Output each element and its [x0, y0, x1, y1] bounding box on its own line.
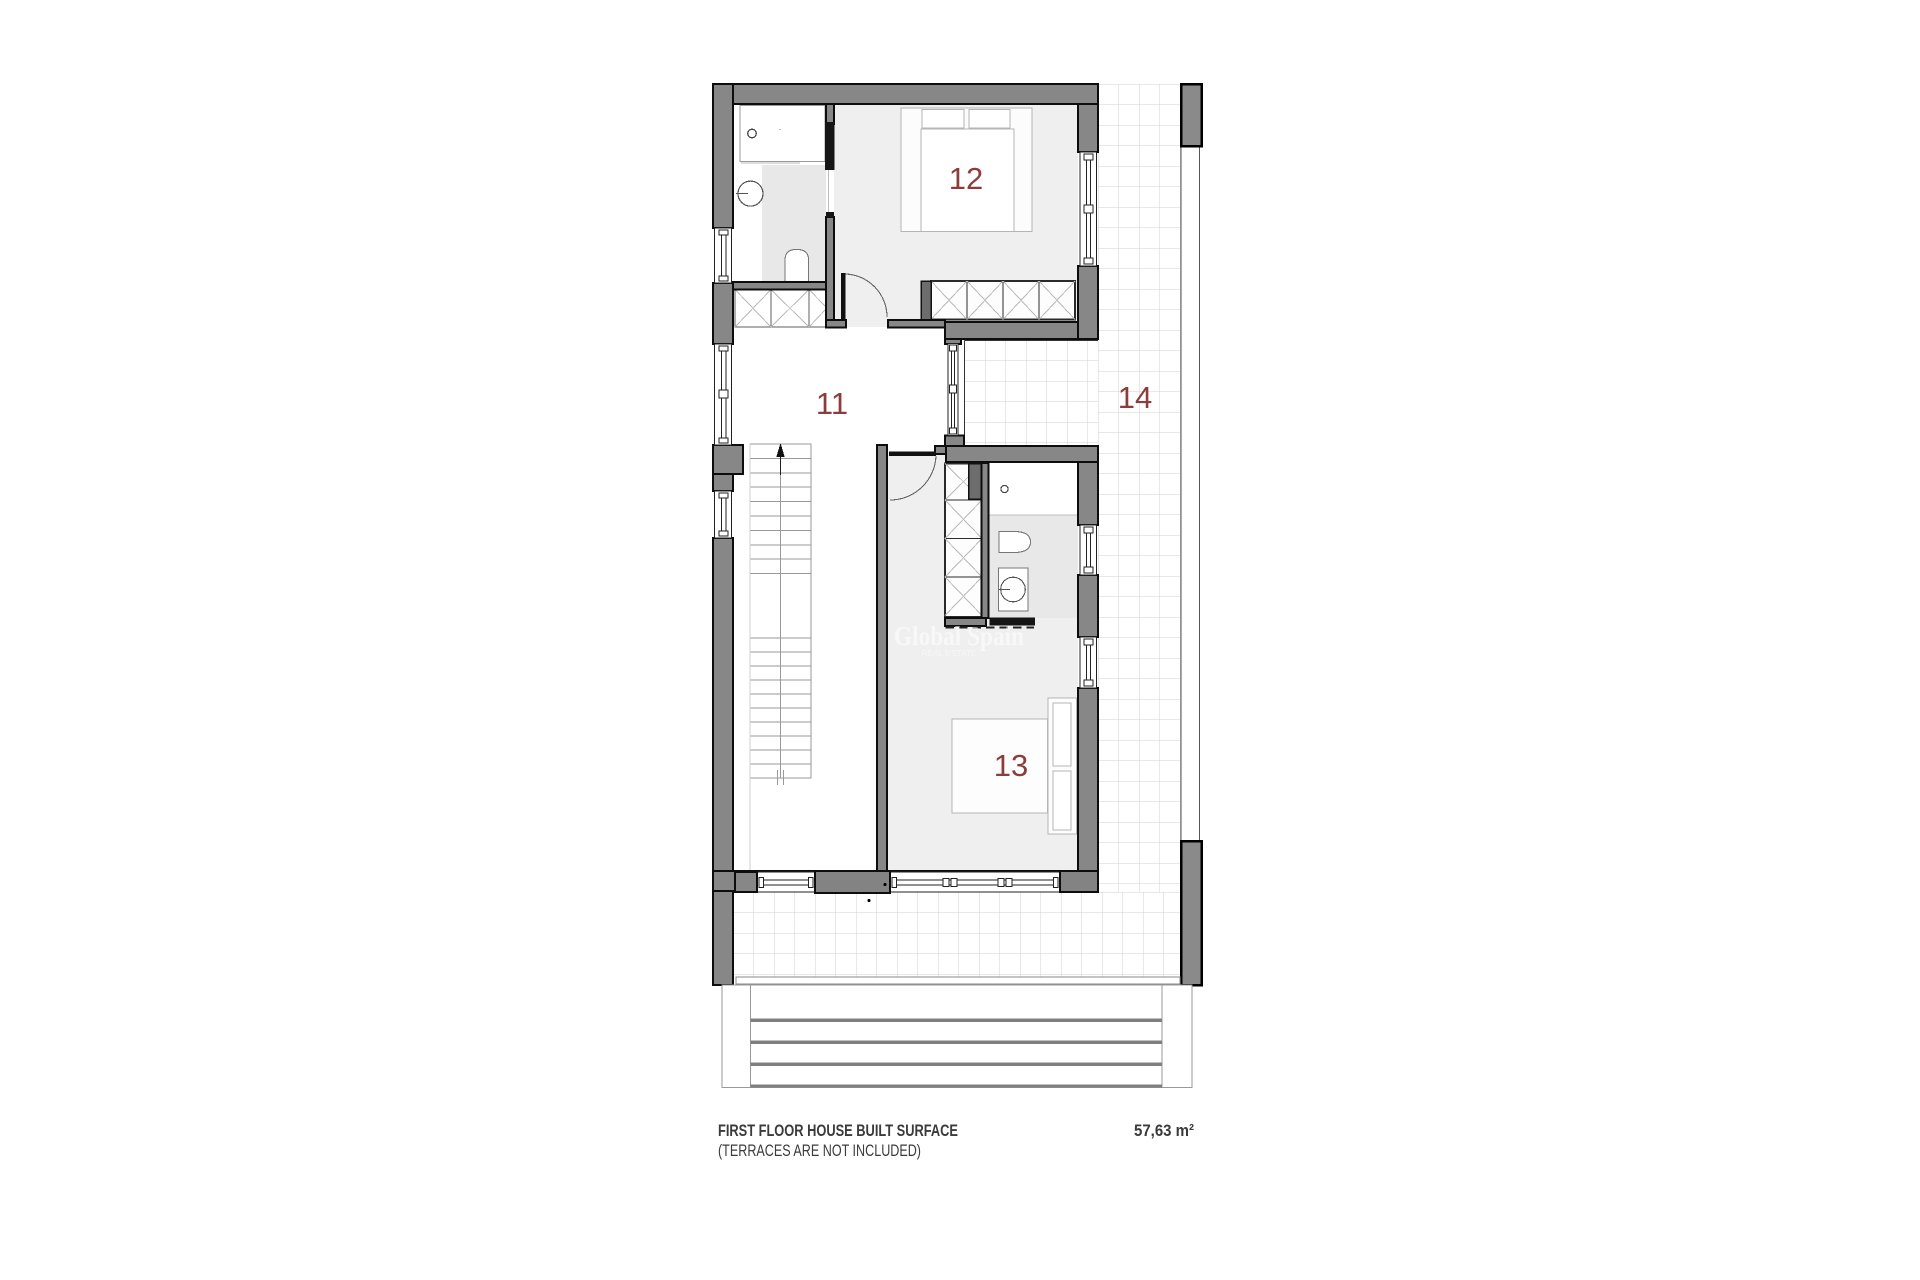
- svg-text:FIRST FLOOR HOUSE BUILT SURFAC: FIRST FLOOR HOUSE BUILT SURFACE: [718, 1122, 958, 1140]
- svg-text:14: 14: [1118, 380, 1152, 415]
- svg-text:REAL ESTATE: REAL ESTATE: [922, 648, 977, 658]
- svg-text:12: 12: [949, 161, 983, 196]
- svg-text:57,63 m²: 57,63 m²: [1134, 1122, 1194, 1140]
- svg-text:13: 13: [994, 748, 1028, 783]
- svg-text:(TERRACES ARE NOT INCLUDED): (TERRACES ARE NOT INCLUDED): [718, 1142, 921, 1160]
- svg-text:Global Spain: Global Spain: [894, 621, 1024, 651]
- svg-text:11: 11: [816, 386, 848, 421]
